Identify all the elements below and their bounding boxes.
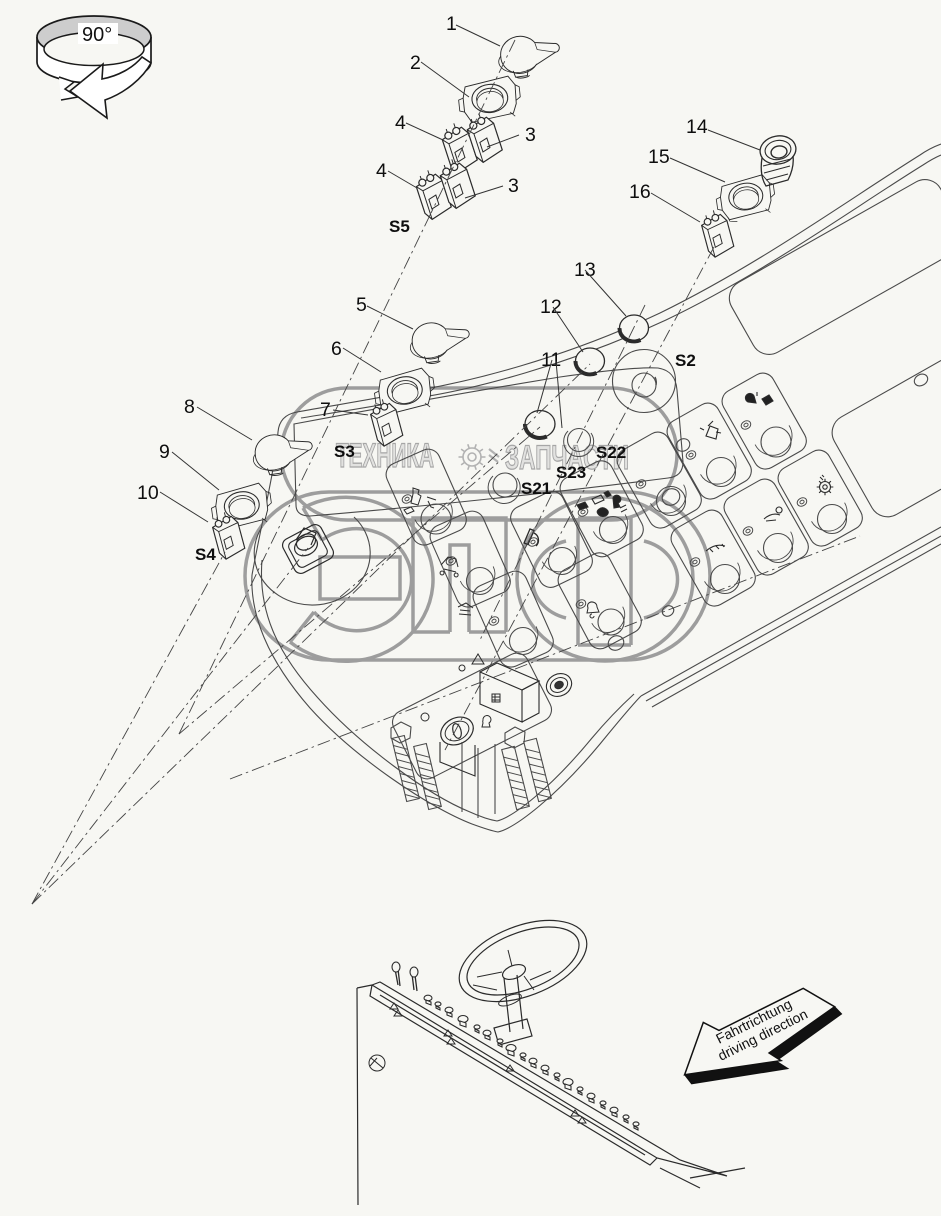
- svg-text:4: 4: [395, 112, 406, 134]
- svg-text:S2: S2: [675, 351, 696, 370]
- svg-text:S4: S4: [195, 545, 216, 564]
- svg-text:S21: S21: [521, 479, 551, 498]
- svg-text:10: 10: [137, 482, 159, 504]
- svg-text:14: 14: [686, 116, 708, 138]
- svg-text:S3: S3: [334, 442, 355, 461]
- svg-text:9: 9: [159, 441, 170, 463]
- svg-text:S23: S23: [556, 463, 586, 482]
- svg-text:16: 16: [629, 181, 651, 203]
- svg-text:8: 8: [184, 396, 195, 418]
- svg-text:7: 7: [320, 399, 331, 421]
- svg-text:S5: S5: [389, 217, 410, 236]
- svg-text:3: 3: [525, 124, 536, 146]
- svg-text:15: 15: [648, 146, 670, 168]
- svg-text:4: 4: [376, 160, 387, 182]
- svg-text:5: 5: [356, 294, 367, 316]
- svg-text:6: 6: [331, 338, 342, 360]
- svg-text:90°: 90°: [82, 24, 112, 46]
- svg-text:2: 2: [410, 52, 421, 74]
- svg-text:3: 3: [508, 175, 519, 197]
- svg-text:1: 1: [446, 13, 457, 35]
- svg-text:11: 11: [541, 349, 561, 371]
